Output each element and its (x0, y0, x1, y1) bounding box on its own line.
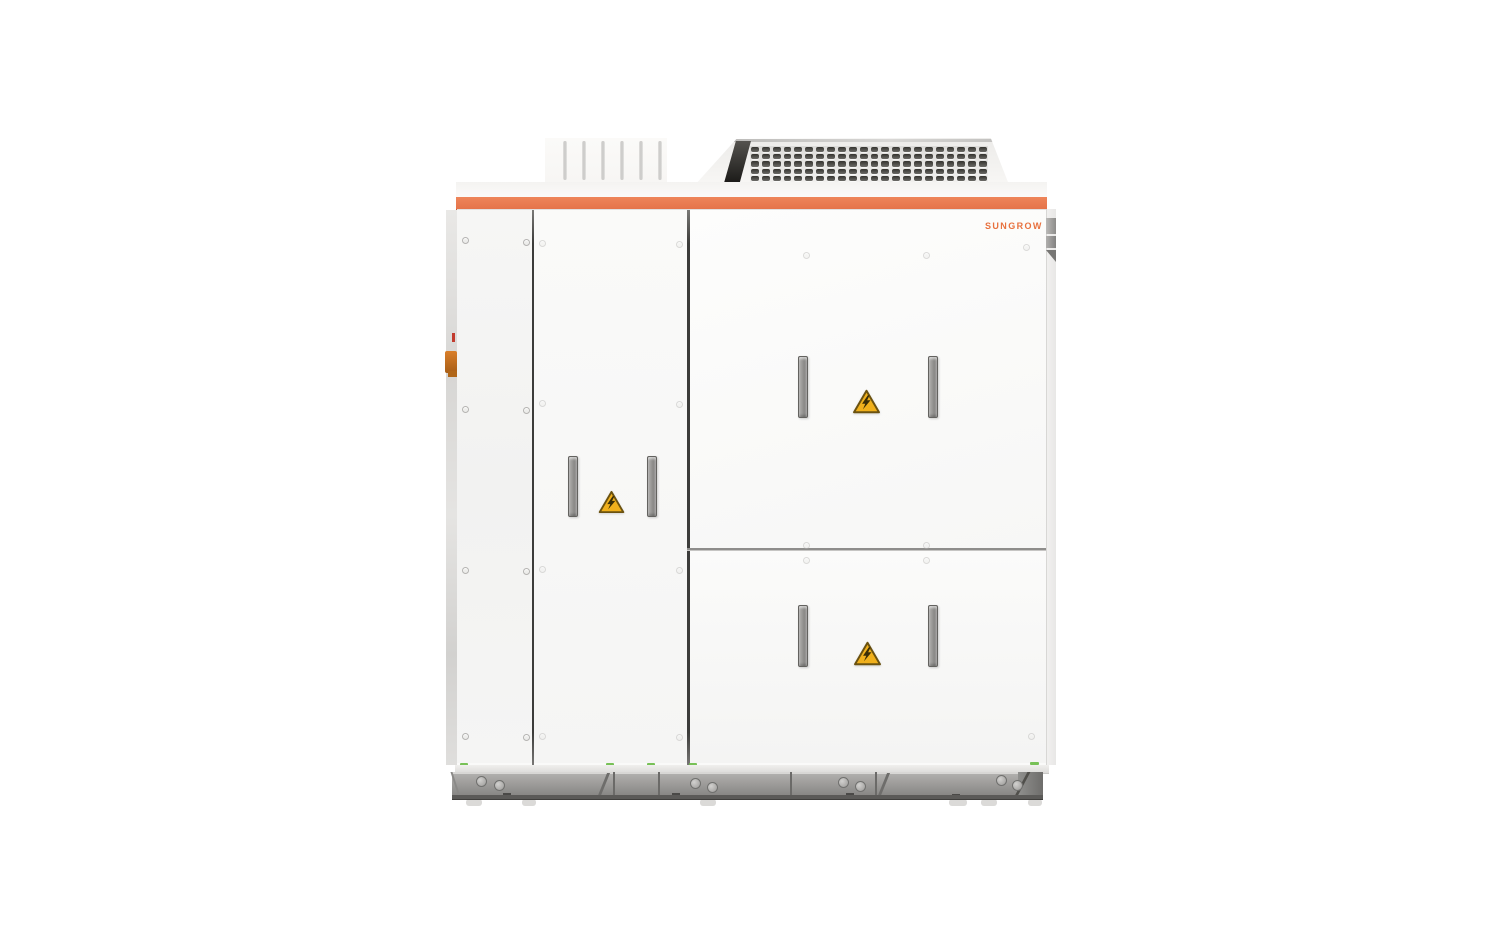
middle-door (534, 210, 687, 763)
grille-hole (936, 154, 944, 159)
grille-hole (957, 154, 965, 159)
grille-hole (979, 161, 987, 166)
grille-hole (936, 176, 944, 181)
grille-hole (903, 154, 911, 159)
grille-hole (794, 154, 802, 159)
grille-hole (968, 169, 976, 174)
upper-right-door (690, 210, 1046, 548)
skid-foot (700, 799, 716, 806)
panel-screw (523, 239, 530, 246)
grille-hole (936, 161, 944, 166)
grille-hole (838, 169, 846, 174)
high-voltage-warning (852, 389, 881, 419)
high-voltage-warning-icon (853, 641, 882, 666)
door-handle (798, 605, 808, 667)
skid-top-edge (452, 772, 1043, 774)
door-handle (928, 605, 938, 667)
skid-bolt (996, 775, 1007, 786)
grille-hole (903, 169, 911, 174)
grille-hole (914, 154, 922, 159)
grille-hole (773, 169, 781, 174)
panel-screw (539, 240, 546, 247)
grille-hole (871, 154, 879, 159)
panel-screw (523, 734, 530, 741)
door-handle (647, 456, 657, 517)
grille-hole (751, 154, 759, 159)
grille-hole (925, 147, 933, 152)
panel-screw (1028, 733, 1035, 740)
roof-vent-slot (563, 141, 567, 180)
grille-hole (860, 169, 868, 174)
grille-hole (805, 147, 813, 152)
skid-bolt (690, 778, 701, 789)
grille-hole (979, 154, 987, 159)
grille-hole (794, 161, 802, 166)
panel-screw (462, 733, 469, 740)
grille-hole (816, 154, 824, 159)
roof-band (456, 182, 1047, 197)
grille-hole (892, 161, 900, 166)
high-voltage-warning (853, 641, 882, 671)
grille-hole (827, 147, 835, 152)
grille-hole (784, 176, 792, 181)
skid-beam (452, 772, 1043, 800)
door-handle (928, 356, 938, 418)
grille-hole (892, 147, 900, 152)
grille-corner-wedge (992, 141, 1005, 151)
skid-bolt (855, 781, 866, 792)
grille-hole (762, 169, 770, 174)
panel-screw (676, 567, 683, 574)
grille-hole (860, 161, 868, 166)
grille-hole (827, 176, 835, 181)
roof-vent-slot (639, 141, 643, 180)
vertical-seam-1 (532, 210, 534, 766)
grille-hole (957, 161, 965, 166)
grille-hole (881, 154, 889, 159)
grille-hole (936, 147, 944, 152)
panel-screw (539, 733, 546, 740)
skid-foot (466, 799, 482, 806)
grille-hole (892, 154, 900, 159)
grille-hole (794, 169, 802, 174)
grille-hole (968, 161, 976, 166)
grille-hole (849, 169, 857, 174)
grille-hole (827, 154, 835, 159)
grille-hole (838, 161, 846, 166)
grille-hole (936, 169, 944, 174)
grille-hole (849, 176, 857, 181)
skid-bottom-edge (452, 795, 1043, 800)
panel-screw (523, 407, 530, 414)
grille-hole (794, 147, 802, 152)
panel-screw (803, 252, 810, 259)
left-service-panel (457, 210, 532, 763)
grille-hole (816, 176, 824, 181)
right-hinge-bracket (1045, 236, 1056, 248)
grille-hole (860, 154, 868, 159)
grille-hole (925, 154, 933, 159)
grille-hole (784, 147, 792, 152)
skid-foot (981, 799, 997, 806)
grille-hole (762, 176, 770, 181)
grille-hole (957, 176, 965, 181)
grille-hole (773, 147, 781, 152)
grille-hole (784, 169, 792, 174)
roof-vent-slot (658, 141, 662, 180)
grille-hole (968, 154, 976, 159)
grille-hole (860, 147, 868, 152)
panel-screw (1023, 244, 1030, 251)
grille-hole (871, 161, 879, 166)
grille-hole (881, 169, 889, 174)
grille-hole (751, 176, 759, 181)
grille-hole (881, 147, 889, 152)
grille-hole (925, 161, 933, 166)
panel-screw (676, 401, 683, 408)
grille-hole (979, 169, 987, 174)
grille-hole (903, 147, 911, 152)
grille-hole (762, 147, 770, 152)
panel-screw (803, 557, 810, 564)
grille-hole (773, 176, 781, 181)
grille-hole (957, 147, 965, 152)
grille-hole (838, 154, 846, 159)
grille-hole (947, 169, 955, 174)
grille-hole (914, 176, 922, 181)
grille-hole (751, 169, 759, 174)
door-handle (798, 356, 808, 418)
product-photo: SUNGROW (0, 0, 1500, 940)
grille-hole (968, 147, 976, 152)
grille-hole (860, 176, 868, 181)
grille-hole (947, 154, 955, 159)
grille-hole (968, 176, 976, 181)
roof-grille (694, 138, 1008, 186)
grille-hole (903, 176, 911, 181)
skid-bolt (476, 776, 487, 787)
roof-vent-slot (620, 141, 624, 180)
sungrow-logo: SUNGROW (985, 221, 1037, 231)
grille-hole (871, 169, 879, 174)
skid-foot (1028, 799, 1042, 806)
skid-foot (522, 799, 536, 806)
vertical-seam-2 (687, 210, 690, 766)
grille-hole (892, 169, 900, 174)
panel-screw (803, 542, 810, 549)
grille-hole (849, 147, 857, 152)
grille-hole (914, 147, 922, 152)
grille-hole (784, 161, 792, 166)
grille-hole (871, 176, 879, 181)
grille-top-edge (734, 139, 996, 142)
grille-hole (925, 169, 933, 174)
panel-screw (676, 734, 683, 741)
grille-hole (881, 176, 889, 181)
skid-foot (949, 799, 967, 806)
side-red-mark (452, 333, 455, 342)
door-handle (568, 456, 578, 517)
grille-hole (925, 176, 933, 181)
grille-hole (762, 161, 770, 166)
grille-hole (914, 161, 922, 166)
grille-hole (849, 161, 857, 166)
roof-vent-slots (545, 138, 667, 182)
grille-hole (784, 154, 792, 159)
side-orange-bracket-notch (448, 371, 457, 377)
panel-screw (462, 237, 469, 244)
grille-hole (816, 169, 824, 174)
grille-hole (947, 176, 955, 181)
grille-hole (794, 176, 802, 181)
roof-vent-slot (582, 141, 586, 180)
skid-bolt (838, 777, 849, 788)
roof-vent-slot (601, 141, 605, 180)
high-voltage-warning-icon (852, 389, 881, 414)
grille-hole (881, 161, 889, 166)
grille-hole (773, 161, 781, 166)
skid-bolt (1012, 780, 1023, 791)
grille-hole (751, 161, 759, 166)
high-voltage-warning-icon (598, 490, 625, 514)
panel-screw (462, 567, 469, 574)
grille-hole (838, 176, 846, 181)
panel-screw (462, 406, 469, 413)
grille-hole (947, 161, 955, 166)
panel-screw (923, 557, 930, 564)
grille-shadow-slant (724, 141, 751, 183)
grille-hole (762, 154, 770, 159)
grille-hole (838, 147, 846, 152)
grille-hole (816, 161, 824, 166)
grille-hole (979, 147, 987, 152)
grille-hole (957, 169, 965, 174)
grille-hole (947, 147, 955, 152)
grille-hole (871, 147, 879, 152)
panel-screw (923, 252, 930, 259)
panel-screw (676, 241, 683, 248)
panel-screw (923, 542, 930, 549)
panel-screw (539, 566, 546, 573)
grille-hole (805, 161, 813, 166)
panel-screw (539, 400, 546, 407)
high-voltage-warning (598, 490, 625, 519)
grille-hole (892, 176, 900, 181)
grille-hole (751, 147, 759, 152)
skid-bolt (494, 780, 505, 791)
grille-hole (979, 176, 987, 181)
side-orange-bracket (445, 351, 457, 373)
grille-hole (849, 154, 857, 159)
grille-hole (903, 161, 911, 166)
panel-screw (523, 568, 530, 575)
grille-hole (816, 147, 824, 152)
grille-hole (805, 154, 813, 159)
grille-perforated-panel (750, 146, 988, 182)
grille-hole (805, 176, 813, 181)
grille-hole (827, 169, 835, 174)
grille-hole (805, 169, 813, 174)
horizontal-seam (687, 548, 1046, 551)
grille-hole (827, 161, 835, 166)
cabinet-front: SUNGROW (457, 209, 1046, 766)
grille-hole (914, 169, 922, 174)
cabinet-right-side (1046, 209, 1056, 765)
grille-hole (773, 154, 781, 159)
skid-bolt (707, 782, 718, 793)
